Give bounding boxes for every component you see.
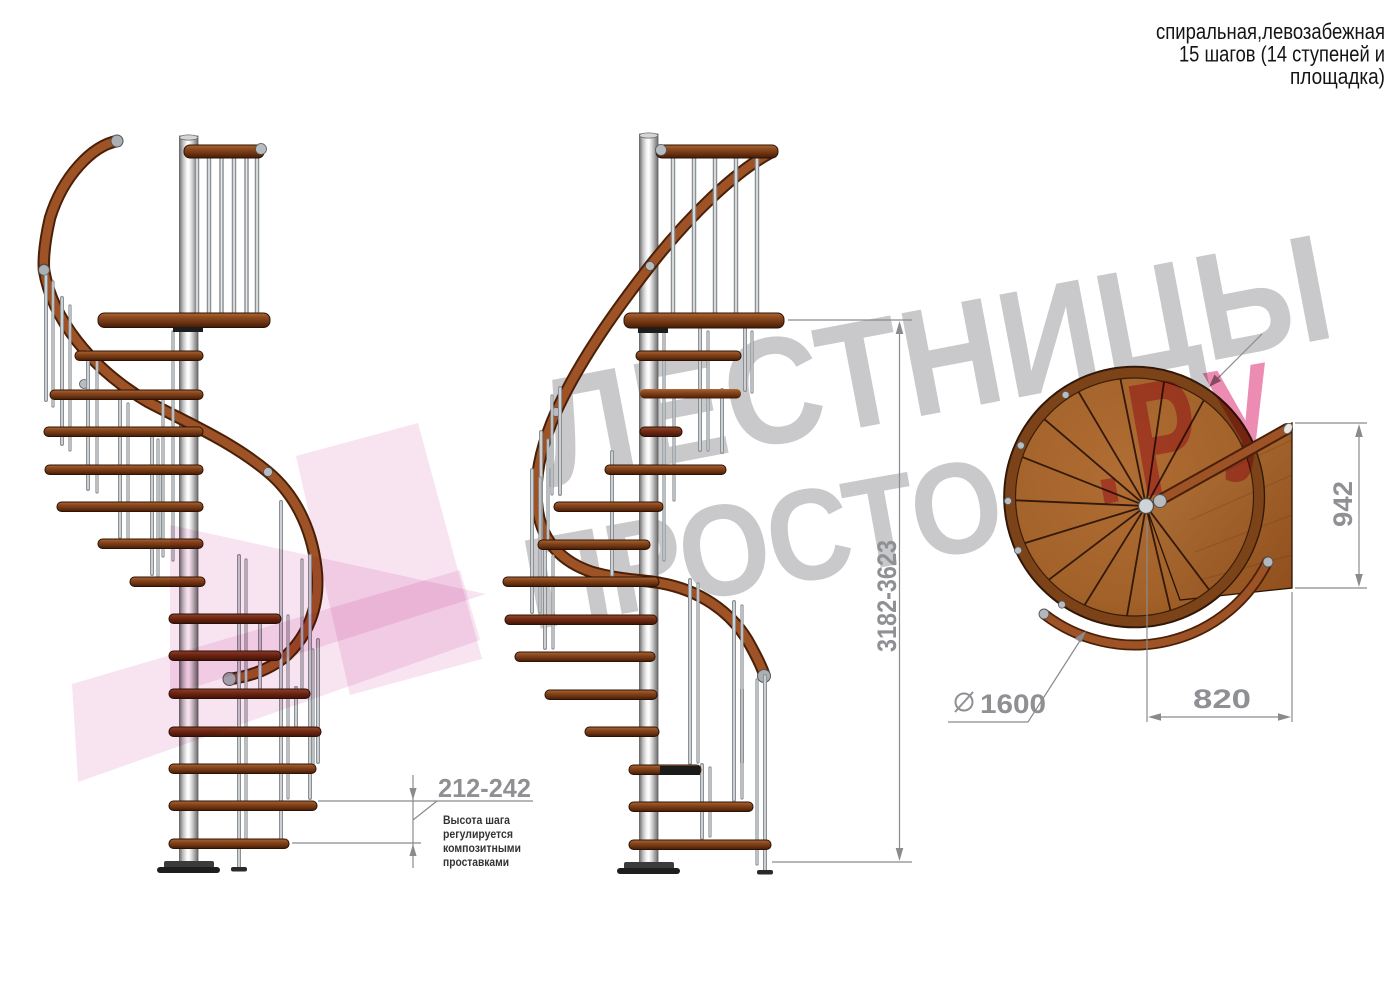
svg-text:площадка): площадка) [1290, 64, 1385, 89]
svg-text:820: 820 [1193, 684, 1251, 714]
svg-text:3182-3623: 3182-3623 [872, 540, 902, 652]
svg-text:212-242: 212-242 [438, 773, 531, 803]
svg-text:Высота шага: Высота шага [443, 813, 510, 827]
svg-text:942: 942 [1328, 481, 1358, 527]
svg-text:1600: 1600 [980, 689, 1046, 719]
svg-text:15 шагов (14 ступеней и: 15 шагов (14 ступеней и [1179, 42, 1385, 67]
svg-text:композитными: композитными [443, 841, 521, 855]
svg-text:проставками: проставками [443, 855, 509, 869]
svg-text:спиральная,левозабежная: спиральная,левозабежная [1156, 19, 1385, 44]
svg-text:регулируется: регулируется [443, 827, 513, 841]
